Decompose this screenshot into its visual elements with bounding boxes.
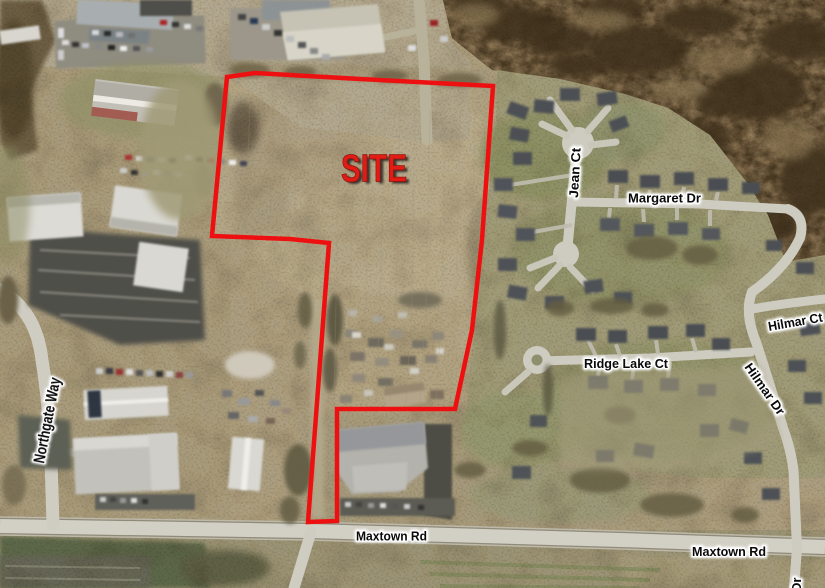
svg-text:Dr: Dr bbox=[789, 578, 804, 588]
svg-text:Maxtown Rd: Maxtown Rd bbox=[692, 544, 766, 559]
svg-text:SITE: SITE bbox=[341, 148, 407, 191]
svg-text:Maxtown Rd: Maxtown Rd bbox=[356, 529, 427, 544]
svg-text:Margaret Dr: Margaret Dr bbox=[628, 191, 701, 206]
svg-text:Ridge Lake Ct: Ridge Lake Ct bbox=[584, 356, 669, 371]
svg-text:Jean Ct: Jean Ct bbox=[566, 147, 584, 198]
